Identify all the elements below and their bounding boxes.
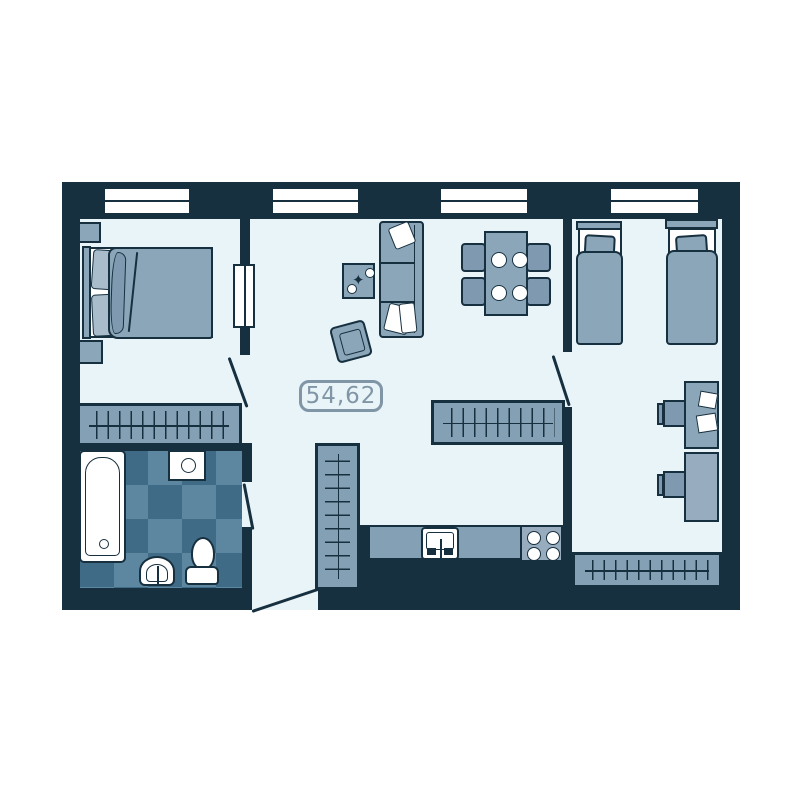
bedroom2-door-swing	[552, 355, 571, 406]
plate	[512, 285, 528, 301]
area-label-badge: 54,62	[299, 380, 383, 412]
bathroom-sink	[139, 556, 175, 586]
sink-cabinet-handle	[444, 548, 453, 555]
bathroom-wall-lower	[242, 527, 252, 588]
kitchen-wall-step	[358, 525, 368, 588]
hanger-hatch	[441, 408, 555, 437]
bathroom-wall-upper	[242, 451, 252, 482]
hanger-hatch	[86, 411, 232, 439]
dining-table	[484, 231, 528, 316]
armchair	[329, 319, 373, 364]
window	[271, 187, 360, 215]
bedroom1-door-panel	[233, 264, 255, 328]
bathroom-door-swing	[243, 483, 255, 530]
hallway-closet	[315, 443, 360, 590]
bottom-wall-left	[62, 588, 252, 610]
area-label-text: 54,62	[306, 383, 377, 409]
dining-chair	[526, 243, 551, 272]
burner	[546, 531, 560, 545]
kitchen-lower-mass	[368, 560, 563, 588]
hanger-hatch	[582, 560, 712, 580]
plate	[512, 252, 528, 268]
desk-chair	[663, 400, 686, 427]
kitchen-closet	[431, 400, 565, 445]
desk	[684, 452, 719, 522]
sink-faucet	[157, 566, 159, 586]
wall-bedroom2-lower	[563, 407, 572, 588]
burner	[546, 547, 560, 561]
floor-plan-page: ✦ 54,62	[0, 0, 800, 800]
bed-blanket	[576, 251, 623, 345]
window-mullion	[611, 200, 698, 202]
bathtub-drain	[99, 539, 109, 549]
window	[439, 187, 529, 215]
washer-door	[181, 458, 196, 473]
window-mullion	[441, 200, 527, 202]
dining-chair	[526, 277, 551, 306]
desk	[684, 381, 719, 449]
plate	[491, 285, 507, 301]
door-panel-line	[244, 266, 246, 326]
dining-chair	[461, 277, 486, 306]
stove	[520, 525, 563, 562]
kitchen-sink	[421, 527, 459, 560]
sofa-cushion-line	[381, 260, 415, 264]
window-mullion	[105, 200, 189, 202]
bathtub	[79, 450, 126, 563]
armchair-seat	[339, 328, 366, 356]
wardrobe-bedroom-1	[76, 403, 242, 447]
burner	[527, 547, 541, 561]
entrance-door-swing	[252, 588, 319, 613]
right-wall	[722, 182, 740, 610]
bedroom1-door-swing	[228, 357, 249, 408]
burner	[527, 531, 541, 545]
wall-living-bedroom2	[563, 219, 572, 352]
dining-chair	[461, 243, 486, 272]
sink-cabinet-handle	[427, 548, 436, 555]
kitchen-faucet	[440, 539, 442, 559]
window-mullion	[273, 200, 358, 202]
hanger-hatch	[325, 451, 350, 582]
toilet-base	[185, 566, 219, 585]
window	[103, 187, 191, 215]
bed-blanket	[666, 250, 718, 345]
left-wall	[62, 182, 80, 610]
cup-icon	[365, 268, 375, 278]
cup-icon	[347, 284, 357, 294]
bottom-wall-right	[318, 588, 740, 610]
window	[609, 187, 700, 215]
coffee-table: ✦	[342, 263, 375, 299]
apartment-floor-plan: ✦ 54,62	[62, 182, 740, 610]
nightstand	[77, 340, 103, 364]
blanket-fold	[110, 252, 127, 334]
nightstand	[77, 222, 101, 243]
sofa-pillow	[398, 302, 417, 334]
wardrobe-bedroom-2	[572, 552, 722, 588]
paper-sheet	[696, 413, 719, 434]
paper-sheet	[698, 391, 719, 410]
washing-machine	[168, 450, 206, 481]
desk-chair	[663, 471, 686, 498]
plate	[491, 252, 507, 268]
